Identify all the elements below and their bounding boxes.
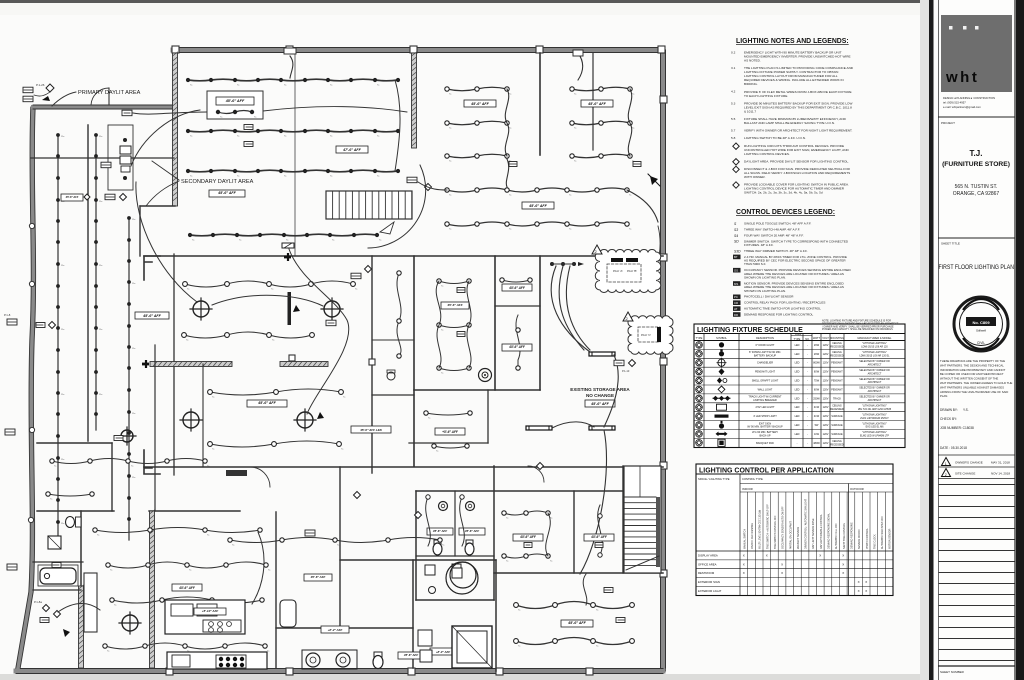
svg-text:120V: 120V: [823, 415, 829, 418]
svg-text:BATTERY BACKUP: BATTERY BACKUP: [754, 355, 777, 358]
svg-text:480W: 480W: [813, 442, 820, 445]
svg-text:ARCHITECT: ARCHITECT: [868, 390, 882, 393]
svg-text:45′-6″ AFF: 45′-6″ AFF: [590, 535, 608, 539]
svg-text:2BL T24 40L ADP GZ10 LP835: 2BL T24 40L ADP GZ10 LP835: [858, 408, 892, 411]
svg-text:MANUAL SWITCH: MANUAL SWITCH: [743, 529, 746, 549]
svg-text:DIMMER CONTROL / AUTOMATIC DAY: DIMMER CONTROL / AUTOMATIC DAYLIGHT: [805, 498, 808, 549]
svg-text:AUTOMATIC FULL OFF: AUTOMATIC FULL OFF: [835, 523, 838, 549]
svg-text:T.J.: T.J.: [970, 149, 983, 158]
svg-text:SURFACE: SURFACE: [831, 415, 843, 418]
svg-text:SHOWN ON LIGHTING PLAN.: SHOWN ON LIGHTING PLAN.: [744, 276, 786, 280]
svg-text:OWNER′S CHANGE: OWNER′S CHANGE: [955, 461, 983, 465]
svg-text:WATT: WATT: [813, 336, 820, 340]
svg-text:THREE WAY DIMMER SWITCH. 48″ 4: THREE WAY DIMMER SWITCH. 48″ 48″ A.F.F.: [744, 249, 808, 253]
svg-text:TYPE: TYPE: [794, 337, 801, 341]
svg-text:LIGHTING SWITCH TO BE 48″ A.F.: LIGHTING SWITCH TO BE 48″ A.F.F. U.O.N.: [744, 136, 806, 140]
svg-text:SHEET TITLE: SHEET TITLE: [941, 242, 960, 246]
svg-text:X: X: [858, 589, 860, 593]
svg-text:POWER AND CAPACITY. SHALL BE S: POWER AND CAPACITY. SHALL BE SPECIFIED O…: [822, 328, 893, 331]
svg-text:TYPE: TYPE: [696, 336, 703, 340]
svg-text:11W: 11W: [814, 433, 820, 436]
svg-text:MULTI LEVEL 50-70% CEC 130.1(b: MULTI LEVEL 50-70% CEC 130.1(b): [759, 510, 762, 549]
svg-text:EXTERIOR SIGN: EXTERIOR SIGN: [698, 580, 720, 584]
svg-text:FOUR WAY SWITCH 20 AMP. 48″ 48: FOUR WAY SWITCH 20 AMP. 48″ 48″ A.F.F.: [744, 233, 804, 237]
svg-text:FIRST FLOOR LIGHTING PLAN: FIRST FLOOR LIGHTING PLAN: [939, 264, 1015, 271]
svg-text:41W: 41W: [814, 406, 820, 409]
svg-text:ARCHITECT: ARCHITECT: [868, 372, 882, 375]
svg-text:SPACE / LIGHTING TYPE: SPACE / LIGHTING TYPE: [698, 477, 730, 481]
svg-text:NO.: NO.: [805, 337, 810, 341]
svg-text:SENSOR ON/OFF: SENSOR ON/OFF: [858, 529, 861, 549]
svg-text:S3D: S3D: [734, 249, 741, 253]
svg-text:AS NOTED.: AS NOTED.: [744, 59, 761, 63]
svg-text:LED: LED: [795, 362, 800, 365]
svg-text:X: X: [743, 562, 745, 566]
svg-text:LDN6 35/15 LO6 AR 120 EL: LDN6 35/15 LO6 AR 120 EL: [859, 355, 890, 358]
svg-text:W/ 90 MIN. BATTERY BACKUP: W/ 90 MIN. BATTERY BACKUP: [747, 426, 783, 429]
svg-text:wht: wht: [945, 69, 979, 86]
svg-text:45′-6″ AFF: 45′-6″ AFF: [519, 535, 537, 539]
svg-text:1: 1: [945, 462, 947, 466]
svg-text:LIGHTING NOTES AND LEGENDS:: LIGHTING NOTES AND LEGENDS:: [736, 38, 849, 45]
svg-text:MOUNTING: MOUNTING: [830, 336, 844, 340]
svg-text:4.2: 4.2: [731, 90, 736, 94]
svg-text:TIME SWITCH + AUTOMATIC SHUT-O: TIME SWITCH + AUTOMATIC SHUT-OFF: [766, 504, 769, 549]
svg-text:SD: SD: [734, 240, 739, 244]
svg-text:ELM2 LED W LP840M LTP: ELM2 LED W LP840M LTP: [860, 435, 889, 438]
svg-text:CR: CR: [734, 301, 738, 305]
svg-text:X: X: [781, 571, 783, 575]
svg-text:29W: 29W: [814, 344, 820, 347]
svg-text:Y.S.: Y.S.: [963, 408, 969, 412]
svg-text:SYMBOL: SYMBOL: [716, 336, 727, 340]
svg-text:P.1-26: P.1-26: [36, 83, 45, 87]
svg-text:PENDANT LIGHT: PENDANT LIGHT: [755, 371, 775, 374]
svg-text:5W: 5W: [815, 424, 819, 427]
svg-text:VOLT: VOLT: [822, 336, 829, 340]
svg-text:WALL LIGHT: WALL LIGHT: [758, 388, 773, 391]
svg-text:250W: 250W: [813, 397, 820, 400]
svg-text:PHOTO CONTROL: PHOTO CONTROL: [866, 528, 869, 549]
svg-text:60W: 60W: [814, 371, 820, 374]
svg-text:60W: 60W: [814, 388, 820, 391]
svg-text:SHOWN ON LIGHTING PLAN.: SHOWN ON LIGHTING PLAN.: [744, 289, 786, 293]
svg-text:LED: LED: [795, 371, 800, 374]
svg-text:DAYLIGHT DISABLE CONTROL: DAYLIGHT DISABLE CONTROL: [820, 513, 823, 549]
svg-text:29W: 29W: [814, 353, 820, 356]
svg-text:45′-6″ AFF: 45′-6″ AFF: [432, 529, 447, 533]
svg-text:+5′-10″ AFF: +5′-10″ AFF: [202, 609, 219, 613]
svg-text:RECESSED: RECESSED: [830, 355, 843, 358]
svg-text:WHT PARTNERS UNLIABLE AGAINST: WHT PARTNERS UNLIABLE AGAINST DAMAGES: [940, 385, 1004, 389]
svg-text:TIME SWITCH CONTROL OFF: TIME SWITCH CONTROL OFF: [774, 515, 777, 549]
svg-text:Stillwell: Stillwell: [976, 329, 986, 333]
svg-text:SHELL GRAFFT LIGHT: SHELL GRAFFT LIGHT: [752, 380, 779, 383]
svg-text:45′-6″ AFF: 45′-6″ AFF: [470, 102, 489, 106]
svg-text:2′X2′ LED LIGHT: 2′X2′ LED LIGHT: [755, 406, 774, 409]
svg-text:ARCHITECT: ARCHITECT: [868, 399, 882, 402]
svg-text:120V: 120V: [823, 433, 829, 436]
svg-text:3.1: 3.1: [731, 66, 736, 70]
svg-text:X: X: [842, 554, 844, 558]
svg-text:800W: 800W: [813, 362, 820, 365]
svg-text:MOTION SENSOR: MOTION SENSOR: [889, 528, 892, 549]
svg-text:EXISTING STORAGE AREA: EXISTING STORAGE AREA: [570, 387, 630, 392]
svg-text:PAU ′A′: PAU ′A′: [613, 269, 623, 273]
svg-text:45′-6″ AFF: 45′-6″ AFF: [142, 314, 161, 318]
svg-text:LIGHTING FIXTURE SCHEDULE: LIGHTING FIXTURE SCHEDULE: [697, 327, 803, 334]
svg-text:RESTROOM: RESTROOM: [698, 571, 715, 575]
svg-text:WHT PARTNERS. THE DESIGN AND T: WHT PARTNERS. THE DESIGN AND TECHNICAL: [940, 363, 1004, 367]
svg-text:LIMITING BREAKER: LIMITING BREAKER: [753, 399, 777, 402]
svg-text:SITE CHANGE: SITE CHANGE: [955, 472, 975, 476]
svg-text:5.7: 5.7: [731, 129, 736, 133]
svg-text:WITHOUT THE WRITTEN CONSENT OF: WITHOUT THE WRITTEN CONSENT OF THE: [940, 377, 998, 381]
svg-text:120V: 120V: [823, 406, 829, 409]
svg-text:INDOOR: INDOOR: [742, 487, 753, 491]
svg-text:+8′-2″ AFF: +8′-2″ AFF: [328, 628, 343, 632]
svg-text:0.2: 0.2: [731, 51, 736, 55]
svg-text:ORANGE, CA 92867: ORANGE, CA 92867: [953, 191, 1000, 197]
svg-text:120V: 120V: [823, 371, 829, 374]
svg-text:PAU ′B′: PAU ′B′: [627, 269, 637, 273]
svg-text:LED: LED: [795, 433, 800, 436]
svg-text:AT: AT: [734, 307, 738, 311]
svg-text:45′-6″ AFF: 45′-6″ AFF: [403, 653, 418, 657]
svg-text:BT: BT: [734, 255, 738, 259]
svg-text:SECONDARY DAYLIT AREA: SECONDARY DAYLIT AREA: [181, 179, 254, 185]
svg-text:No. C809: No. C809: [972, 320, 990, 325]
svg-text:BALLAST AND LAMP SHALL BE ENER: BALLAST AND LAMP SHALL BE ENERGY SAVING …: [744, 121, 835, 125]
svg-text:BE COPIED OR USED FOR ANOTHER: BE COPIED OR USED FOR ANOTHER PROJECT: [940, 372, 1004, 376]
svg-text:X: X: [858, 580, 860, 584]
svg-text:OS: OS: [734, 269, 738, 273]
svg-text:MAY 31, 2018: MAY 31, 2018: [991, 461, 1010, 465]
svg-text:LED: LED: [795, 353, 800, 356]
svg-text:CONTROL RELAY PACK FOR LIGHTIN: CONTROL RELAY PACK FOR LIGHTING / RECEPT…: [744, 301, 825, 305]
svg-text:CIVIL: CIVIL: [977, 341, 985, 345]
svg-text:X: X: [819, 554, 821, 558]
svg-text:120V: 120V: [823, 442, 829, 445]
svg-text:S4: S4: [734, 234, 738, 238]
svg-text:PAU ′C′: PAU ′C′: [641, 333, 652, 337]
svg-text:PC: PC: [734, 295, 738, 299]
svg-text:120V: 120V: [823, 388, 829, 391]
svg-text:TIME CLOCK: TIME CLOCK: [873, 534, 876, 549]
svg-text:ARCHITECT: ARCHITECT: [868, 363, 882, 366]
svg-text:AUTOMATIC SIGN SHUT-OFF: AUTOMATIC SIGN SHUT-OFF: [881, 515, 884, 549]
svg-text:(FURNITURE STORE): (FURNITURE STORE): [942, 161, 1010, 168]
svg-text:PHOTOCELL / DAYLIGHT SENSOR: PHOTOCELL / DAYLIGHT SENSOR: [744, 295, 794, 299]
svg-text:tel: (909) 515-4957: tel: (909) 515-4957: [943, 101, 966, 105]
svg-text:CONTROL TYPE: CONTROL TYPE: [742, 477, 763, 481]
svg-text:DRAWN BY:: DRAWN BY:: [940, 408, 958, 412]
svg-text:LED: LED: [795, 424, 800, 427]
svg-text:X: X: [781, 562, 783, 566]
svg-text:LAMP: LAMP: [795, 333, 802, 336]
svg-text:X: X: [865, 589, 867, 593]
svg-text:45′-6″ AFF: 45′-6″ AFF: [446, 303, 462, 307]
svg-text:DISPLAY AREA: DISPLAY AREA: [698, 554, 718, 558]
svg-text:PLAN.: PLAN.: [940, 394, 948, 398]
svg-text:45′-6″ AFF: 45′-6″ AFF: [65, 195, 79, 199]
svg-text:2: 2: [945, 473, 947, 477]
svg-text:ON/OFF CEC DIMMING: ON/OFF CEC DIMMING: [751, 523, 754, 549]
svg-text:EXTERIOR LIGHT: EXTERIOR LIGHT: [698, 589, 722, 593]
svg-text:DEMAND RESPONSIVE: DEMAND RESPONSIVE: [851, 522, 854, 549]
svg-text:LED: LED: [795, 344, 800, 347]
svg-text:4′ LED STRIP LIGHT: 4′ LED STRIP LIGHT: [753, 415, 777, 418]
svg-text:FIXTURES. 48″ A.F.F.: FIXTURES. 48″ A.F.F.: [744, 243, 774, 247]
svg-text:X: X: [766, 554, 768, 558]
svg-text:REQUIRED DEVICES & WIRING. INC: REQUIRED DEVICES & WIRING. INCLUDE ALL E…: [744, 78, 844, 82]
svg-text:PENDANT: PENDANT: [831, 388, 843, 391]
svg-text:X: X: [842, 571, 844, 575]
svg-text:41W: 41W: [814, 415, 820, 418]
svg-text:WITH OWNER.: WITH OWNER.: [744, 175, 766, 179]
svg-text:47′-6″ AFF: 47′-6″ AFF: [342, 148, 361, 152]
svg-text:VERIFY WITH OWNER OR ARCHITECT: VERIFY WITH OWNER OR ARCHITECT FOR NIGHT…: [744, 129, 853, 133]
svg-text:MS: MS: [734, 282, 738, 286]
svg-text:DAYLIGHT AREA. PROVIDE DAYLIT: DAYLIGHT AREA. PROVIDE DAYLIT SENSOR FOR…: [744, 159, 849, 163]
svg-text:ZL1N L48 5000LM MVOLT: ZL1N L48 5000LM MVOLT: [860, 417, 889, 420]
svg-text:P.1-8: P.1-8: [4, 313, 11, 317]
svg-text:45′-6″ AFF: 45′-6″ AFF: [178, 586, 196, 590]
svg-text:OUTDOOR: OUTDOOR: [850, 487, 864, 491]
svg-text:BANQUET PAD: BANQUET PAD: [756, 442, 774, 445]
svg-text:120V: 120V: [823, 353, 829, 356]
svg-text:RECESSED: RECESSED: [830, 346, 843, 349]
svg-text:TO EACH LIGHTING FIXTURE.: TO EACH LIGHTING FIXTURE.: [744, 94, 788, 98]
svg-text:SURFACE: SURFACE: [831, 424, 843, 427]
svg-text:45′-6″ AFF: 45′-6″ AFF: [464, 529, 479, 533]
svg-text:45′-6″ AFF: 45′-6″ AFF: [587, 102, 606, 106]
svg-text:ARCHITECT: ARCHITECT: [868, 381, 882, 384]
svg-text:OFFICE AREA: OFFICE AREA: [698, 562, 717, 566]
svg-text:X: X: [865, 580, 867, 584]
svg-text:45′-6″ AFF: 45′-6″ AFF: [257, 401, 276, 405]
svg-text:LED: LED: [795, 388, 800, 391]
svg-text:DEMAND RESPONSIVE SIGNAL: DEMAND RESPONSIVE SIGNAL: [828, 512, 831, 549]
svg-text:ARISING FROM THE UNAUTHORIZED: ARISING FROM THE UNAUTHORIZED USE OF SAI…: [940, 390, 1008, 394]
svg-text:INFORMATION ARE PROPRIETARY AN: INFORMATION ARE PROPRIETARY AND CANNOT: [940, 368, 1006, 372]
svg-text:LED: LED: [795, 380, 800, 383]
svg-text:WHT PARTNERS. THE OWNER AGREES: WHT PARTNERS. THE OWNER AGREES TO HOLD T…: [940, 381, 1013, 385]
svg-text:PRIMARY DAYLIT AREA: PRIMARY DAYLIT AREA: [78, 90, 141, 96]
svg-text:45′-6″ AFF: 45′-6″ AFF: [567, 621, 586, 625]
svg-text:TRACK: TRACK: [833, 397, 842, 400]
svg-text:120V: 120V: [823, 380, 829, 383]
svg-text:45′-6″ AFF: 45′-6″ AFF: [225, 99, 245, 103]
svg-text:NO CHANGE: NO CHANGE: [586, 393, 614, 398]
svg-text:75W: 75W: [814, 380, 820, 383]
svg-text:CONTROL DEVICES LEGEND:: CONTROL DEVICES LEGEND:: [736, 209, 835, 216]
svg-text:PARTIAL ON OCCUPANT: PARTIAL ON OCCUPANT: [789, 521, 792, 549]
svg-text:DESCRIPTION: DESCRIPTION: [756, 336, 774, 340]
svg-text:P.1-13: P.1-13: [622, 369, 630, 373]
svg-text:CHECK BY:: CHECK BY:: [940, 417, 957, 421]
svg-text:CHANDELIER: CHANDELIER: [757, 362, 773, 365]
svg-text:SHEET NUMBER: SHEET NUMBER: [940, 670, 965, 674]
svg-text:PENDANT: PENDANT: [831, 380, 843, 383]
svg-text:S3: S3: [734, 228, 738, 232]
svg-text:X: X: [842, 562, 844, 566]
svg-text:PENDANT: PENDANT: [831, 362, 843, 365]
svg-text:120V: 120V: [823, 362, 829, 365]
svg-text:45′-6″ AFF: 45′-6″ AFF: [217, 191, 236, 195]
svg-text:45′-6″ AFF: 45′-6″ AFF: [508, 345, 526, 349]
svg-text:AUTOMATIC TIME SWITCH FOR LIGH: AUTOMATIC TIME SWITCH FOR LIGHTING CONTR…: [744, 307, 821, 311]
svg-text:LED: LED: [795, 397, 800, 400]
svg-text:NOV 14, 2018: NOV 14, 2018: [991, 472, 1010, 476]
svg-text:LED: LED: [795, 406, 800, 409]
svg-text:DR: DR: [734, 313, 738, 317]
svg-text:THAN 5000 S.F.: THAN 5000 S.F.: [744, 262, 766, 266]
svg-text:45′-6″ AFF: 45′-6″ AFF: [590, 402, 609, 406]
svg-text:RECESSED: RECESSED: [830, 408, 843, 411]
svg-text:THESE DRAWINGS ARE THE PROPERT: THESE DRAWINGS ARE THE PROPERTY OF THE: [940, 359, 1005, 363]
svg-text:DATE : 05.30.2018: DATE : 05.30.2018: [940, 446, 967, 450]
svg-text:5.8: 5.8: [731, 136, 736, 140]
svg-text:X: X: [743, 554, 745, 558]
svg-text:THREE WAY SWITCH 48 AMP. 48″ A: THREE WAY SWITCH 48 AMP. 48″ A.F.F.: [744, 228, 800, 232]
svg-text:DAY LIGHT SENSOR ZONE: DAY LIGHT SENSOR ZONE: [812, 518, 815, 549]
svg-text:DESIGN ★PLANNING★ CONSTRUCTION: DESIGN ★PLANNING★ CONSTRUCTION: [943, 96, 995, 100]
svg-text:BIDDING.: BIDDING.: [744, 82, 758, 86]
svg-text:LEVEL EXIT SIGN AS REQUIRED BY: LEVEL EXIT SIGN AS REQUIRED BY THIS DEPA…: [744, 105, 852, 109]
svg-text:565 N. TUSTIN ST.: 565 N. TUSTIN ST.: [955, 184, 998, 190]
svg-text:45′-6″ AFF: 45′-6″ AFF: [310, 575, 326, 579]
svg-text:& 1011.7: & 1011.7: [744, 109, 756, 113]
svg-text:+5′-6″ AFF: +5′-6″ AFF: [442, 430, 459, 434]
svg-text:6″ DOWN LIGHT: 6″ DOWN LIGHT: [756, 344, 775, 347]
svg-text:DEMAND RESPONSE FOR LIGHTING C: DEMAND RESPONSE FOR LIGHTING CONTROL: [744, 312, 814, 316]
svg-text:120V: 120V: [823, 397, 829, 400]
svg-text:e-mail: whtpartners@gmail.com: e-mail: whtpartners@gmail.com: [943, 105, 982, 109]
svg-text:120V: 120V: [823, 424, 829, 427]
svg-text:45′-6″ AFF LED: 45′-6″ AFF LED: [359, 428, 382, 432]
svg-text:+8′-0″ AFF: +8′-0″ AFF: [436, 650, 450, 654]
svg-text:5.5: 5.5: [731, 117, 736, 121]
svg-text:VACANCY SENSOR: VACANCY SENSOR: [797, 527, 800, 549]
svg-text:SWITCH: 2a, 2b, 2c, 3a, 3b, 3c: SWITCH: 2a, 2b, 2c, 3a, 3b, 3c, 3d, 4b, …: [744, 191, 823, 195]
svg-text:LDN6 35/15 LO6 AR 120: LDN6 35/15 LO6 AR 120: [861, 346, 888, 349]
svg-text:EXG LED EL M6: EXG LED EL M6: [866, 426, 885, 429]
svg-text:PENDANT: PENDANT: [831, 371, 843, 374]
svg-text:PROJECT: PROJECT: [941, 121, 955, 125]
svg-text:45′-6″ AFF: 45′-6″ AFF: [528, 204, 547, 208]
svg-text:RECESSED: RECESSED: [830, 444, 843, 447]
svg-text:SINGLE POLE TOGGLE SWITCH, 48″: SINGLE POLE TOGGLE SWITCH, 48″ AFF A.F.F…: [744, 222, 811, 226]
svg-text:MANUFACTURER & MODEL: MANUFACTURER & MODEL: [857, 336, 892, 340]
svg-text:LIGHTING CONTROL DEVICES.: LIGHTING CONTROL DEVICES.: [744, 152, 790, 156]
svg-text:LIGHTING CONTROL PER APPLICATI: LIGHTING CONTROL PER APPLICATION: [699, 468, 834, 475]
svg-text:120V: 120V: [823, 344, 829, 347]
svg-text:5.3: 5.3: [731, 101, 736, 105]
svg-text:OCCUPANCY SENSOR AUTO ON/OFF: OCCUPANCY SENSOR AUTO ON/OFF: [782, 506, 785, 549]
svg-text:BACK-UP: BACK-UP: [759, 435, 770, 438]
svg-text:LED: LED: [795, 415, 800, 418]
svg-text:SURFACE: SURFACE: [831, 433, 843, 436]
svg-text:NIGHT TIME CONTROL: NIGHT TIME CONTROL: [843, 522, 846, 549]
svg-text:JOB NUMBER: C18038: JOB NUMBER: C18038: [940, 426, 974, 430]
svg-text:45′-6″ AFF: 45′-6″ AFF: [508, 286, 526, 290]
svg-text:X: X: [743, 571, 745, 575]
svg-text:P.1-8a: P.1-8a: [34, 600, 42, 604]
